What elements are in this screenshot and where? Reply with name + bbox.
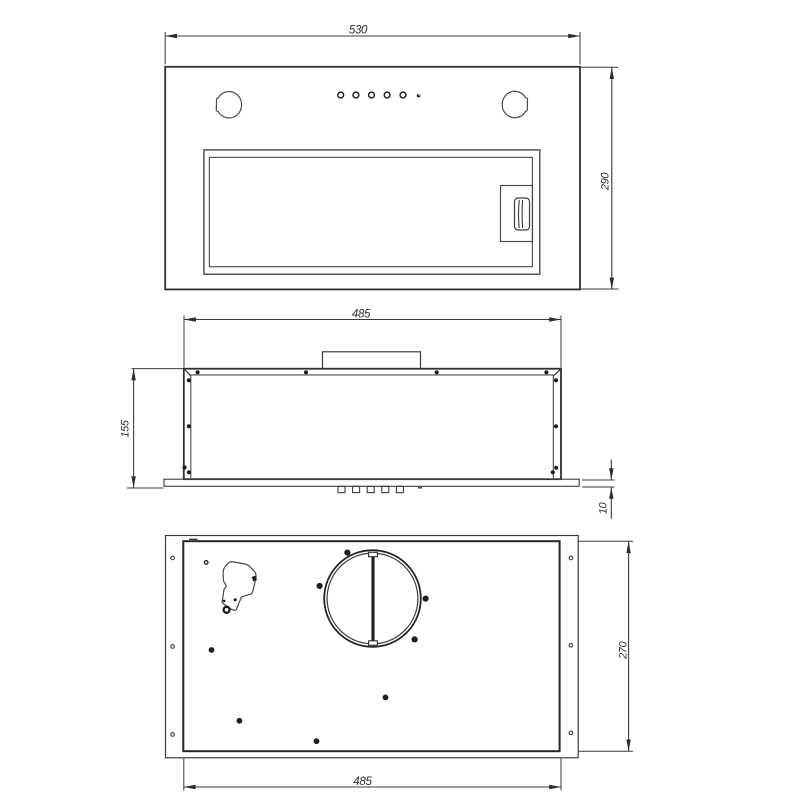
- svg-text:485: 485: [353, 776, 372, 788]
- svg-text:530: 530: [349, 25, 368, 37]
- svg-text:10: 10: [598, 502, 610, 515]
- svg-text:270: 270: [618, 640, 630, 659]
- svg-text:155: 155: [120, 419, 132, 437]
- svg-text:290: 290: [599, 172, 611, 191]
- svg-text:485: 485: [352, 309, 371, 321]
